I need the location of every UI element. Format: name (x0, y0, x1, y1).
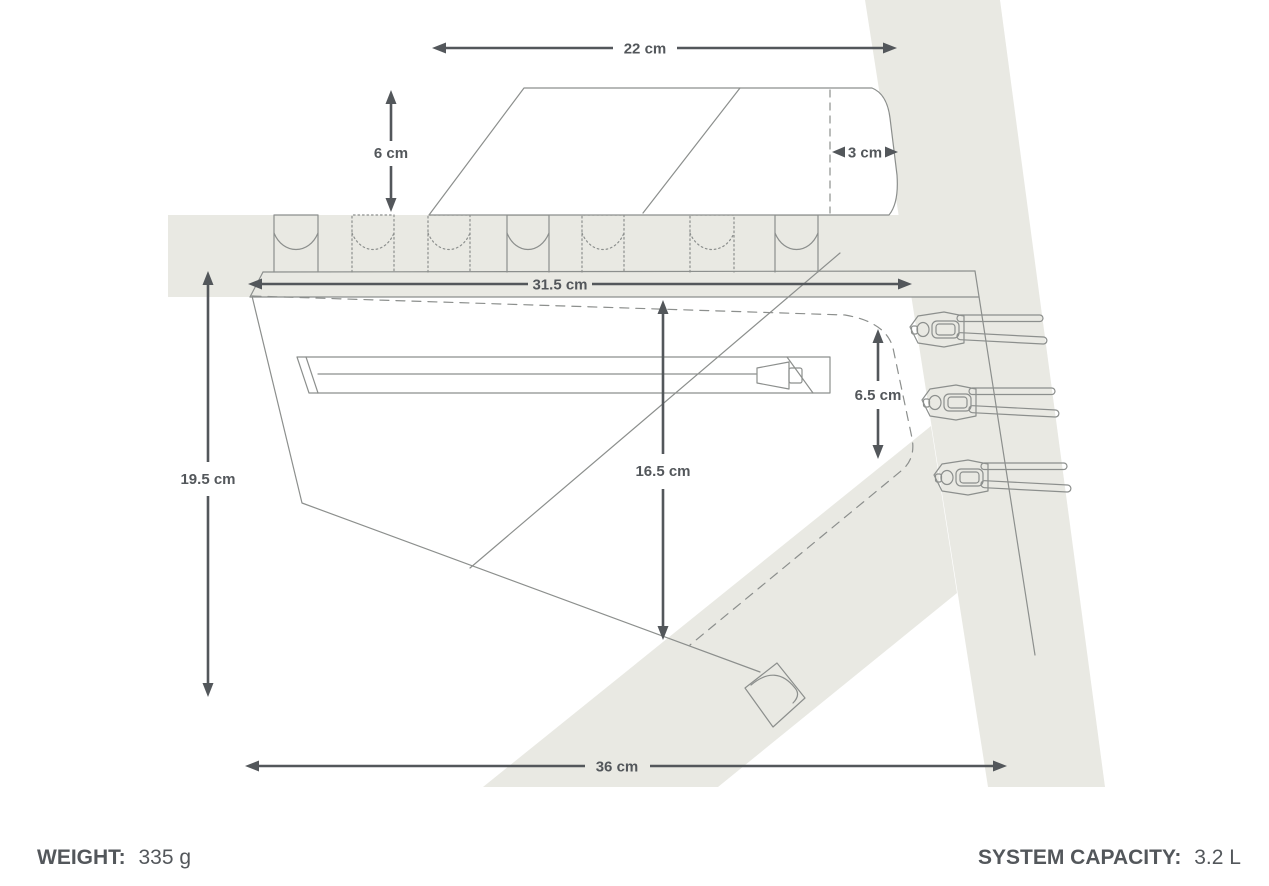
dimension-36cm: 36 cm (245, 759, 1007, 776)
weight-label: WEIGHT: (37, 846, 126, 869)
dimension-label-frame-bag-right-height: 6.5 cm (855, 387, 902, 404)
dimension-label-top-bag-offset: 3 cm (848, 145, 882, 162)
dimension-label-frame-bag-bottom-length: 36 cm (596, 759, 639, 776)
frame-bag-outline (252, 296, 760, 672)
zipper-garage-flap (787, 357, 813, 393)
dimension-6cm: 6 cm (374, 90, 408, 212)
zipper-outline (297, 357, 830, 393)
arrowhead-down-icon (203, 683, 214, 697)
capacity-label: SYSTEM CAPACITY: (978, 846, 1181, 869)
frame-pack-spec-diagram: 22 cm 6 cm 3 cm 31.5 cm 19.5 cm (0, 0, 1269, 886)
dimension-label-frame-bag-center-height: 16.5 cm (635, 463, 690, 480)
dimension-22cm: 22 cm (432, 41, 897, 58)
frame-bag-seam (470, 253, 840, 568)
dimension-label-frame-bag-left-height: 19.5 cm (180, 471, 235, 488)
zipper (297, 357, 830, 393)
arrowhead-down-icon (873, 445, 884, 459)
diagram-svg: 22 cm 6 cm 3 cm 31.5 cm 19.5 cm (0, 0, 1269, 886)
dimension-label-top-bag-width: 22 cm (624, 41, 667, 58)
dimension-label-frame-bag-top-length: 31.5 cm (532, 277, 587, 294)
arrowhead-down-icon (386, 198, 397, 212)
arrowhead-up-icon (386, 90, 397, 104)
arrowhead-left-icon (432, 43, 446, 54)
arrowhead-up-icon (658, 300, 669, 314)
top-pack-outline (429, 88, 897, 215)
weight-spec: WEIGHT: 335 g (37, 846, 191, 870)
down-tube (483, 426, 957, 787)
arrowhead-left-icon (245, 761, 259, 772)
capacity-value: 3.2 L (1194, 846, 1241, 869)
weight-value: 335 g (139, 846, 192, 869)
top-tube-pack (429, 88, 897, 215)
zipper-pull (757, 362, 789, 389)
dimension-6-5cm: 6.5 cm (855, 329, 902, 459)
capacity-spec: SYSTEM CAPACITY: 3.2 L (978, 846, 1241, 870)
dimension-label-top-bag-height: 6 cm (374, 145, 408, 162)
arrowhead-up-icon (873, 329, 884, 343)
dimension-16-5cm: 16.5 cm (635, 300, 690, 640)
dimension-19-5cm: 19.5 cm (180, 271, 235, 697)
